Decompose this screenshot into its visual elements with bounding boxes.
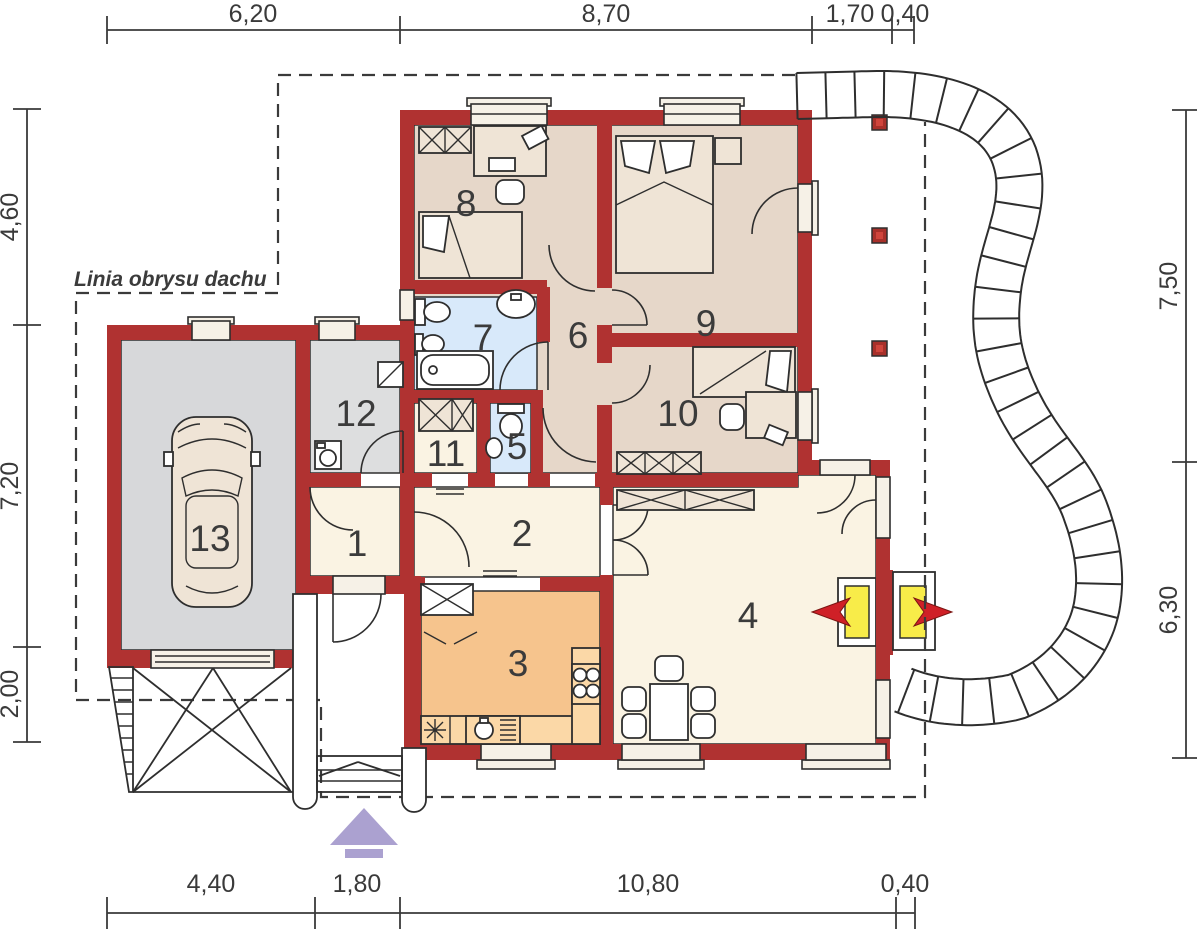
dim-top-3: 1,70 bbox=[826, 0, 875, 28]
living-side-door bbox=[876, 477, 890, 538]
garden-path-joint bbox=[959, 89, 978, 131]
dim-top-2: 8,70 bbox=[582, 0, 631, 28]
garden-path-joint bbox=[962, 679, 963, 725]
garden-path-joint bbox=[1051, 647, 1085, 679]
dimension-right: 7,50 6,30 bbox=[1155, 110, 1197, 758]
dim-bottom-2: 1,80 bbox=[333, 870, 382, 898]
garden-path-joint bbox=[854, 72, 855, 118]
garden-path-joint bbox=[1060, 490, 1102, 510]
car bbox=[164, 417, 260, 607]
garden-path-joint bbox=[1074, 551, 1119, 558]
garden-path-joint bbox=[978, 108, 1008, 143]
room-8-label: 8 bbox=[456, 183, 477, 224]
garden-path-joint bbox=[1033, 662, 1059, 700]
garden-path-joint bbox=[997, 392, 1038, 412]
room-5-label: 5 bbox=[507, 426, 528, 467]
dim-left-2: 7,20 bbox=[0, 462, 24, 511]
dim-top-1: 6,20 bbox=[229, 0, 278, 28]
garden-path-joint bbox=[1047, 461, 1085, 487]
garden-path-joint bbox=[975, 287, 1021, 293]
garden-path-joint bbox=[995, 201, 1040, 208]
garden-path-joint bbox=[936, 78, 947, 123]
dim-left-1: 4,60 bbox=[0, 193, 24, 242]
entrance-arrow-bar bbox=[345, 849, 383, 858]
porch-wall-right bbox=[402, 748, 426, 812]
dim-bottom-1: 4,40 bbox=[187, 870, 236, 898]
dim-right-2: 6,30 bbox=[1155, 586, 1183, 635]
room-4-label: 4 bbox=[738, 595, 759, 636]
garden-path-joint bbox=[910, 73, 915, 119]
corridor-floor bbox=[414, 487, 600, 577]
garden-posts bbox=[872, 115, 887, 356]
floor-plan-page: 1 2 3 4 5 6 7 8 9 10 11 12 13 Linia obry… bbox=[0, 0, 1197, 934]
garden-path-joint bbox=[981, 255, 1026, 266]
dim-bottom-4: 0,40 bbox=[881, 870, 930, 898]
room-13-label: 13 bbox=[189, 518, 230, 559]
dimension-bottom: 4,40 1,80 10,80 0,40 bbox=[107, 870, 929, 929]
room-12-label: 12 bbox=[335, 393, 376, 434]
terrace-door bbox=[820, 460, 870, 475]
garden-path-joint bbox=[825, 72, 826, 118]
dim-right-1: 7,50 bbox=[1155, 262, 1183, 311]
room-11-label: 11 bbox=[427, 433, 465, 474]
garden-path-joint bbox=[985, 368, 1028, 384]
room-3-label: 3 bbox=[508, 643, 529, 684]
garden-path-joint bbox=[976, 343, 1021, 351]
garden-path-joint bbox=[996, 174, 1042, 179]
garden-path-joint bbox=[930, 676, 938, 721]
room-9-label: 9 bbox=[696, 303, 717, 344]
closet-furniture bbox=[419, 399, 473, 431]
dim-bottom-3: 10,80 bbox=[617, 870, 680, 898]
room-7-label: 7 bbox=[473, 317, 494, 358]
floor-plan-drawing: 1 2 3 4 5 6 7 8 9 10 11 12 13 Linia obry… bbox=[0, 0, 1197, 934]
garden-path-joint bbox=[796, 73, 797, 119]
room-6-label: 6 bbox=[568, 315, 589, 356]
garden-path-joint bbox=[1065, 628, 1105, 651]
garden-path-joint bbox=[898, 670, 914, 713]
dimension-left: 4,60 7,20 2,00 bbox=[0, 109, 41, 742]
room-10-label: 10 bbox=[657, 393, 698, 434]
dimension-top: 6,20 8,70 1,70 0,40 bbox=[107, 0, 929, 44]
garden-path-joint bbox=[1011, 674, 1029, 716]
porch-wall-left bbox=[293, 594, 317, 809]
garden-path-joint bbox=[989, 678, 994, 724]
front-door-opening bbox=[333, 576, 385, 594]
garden-path-joint bbox=[990, 138, 1031, 159]
dim-top-4: 0,40 bbox=[881, 0, 930, 28]
garden-path-joint bbox=[1013, 415, 1052, 440]
fridge-icon bbox=[424, 719, 446, 741]
garden-path-joint bbox=[1076, 583, 1122, 584]
garden-path-joint bbox=[884, 71, 885, 117]
garden-path-joint bbox=[1069, 520, 1113, 533]
garden-path-joint bbox=[1073, 607, 1118, 618]
garage-door bbox=[151, 650, 274, 668]
garden-path-joint bbox=[1030, 437, 1067, 464]
driveway bbox=[109, 667, 293, 792]
entrance-arrow-icon bbox=[330, 808, 398, 845]
room-1-label: 1 bbox=[347, 523, 368, 564]
room-2-label: 2 bbox=[512, 513, 533, 554]
garden-path-joint bbox=[989, 227, 1033, 239]
dim-left-3: 2,00 bbox=[0, 670, 24, 719]
roof-outline-label: Linia obrysu dachu bbox=[74, 268, 267, 291]
